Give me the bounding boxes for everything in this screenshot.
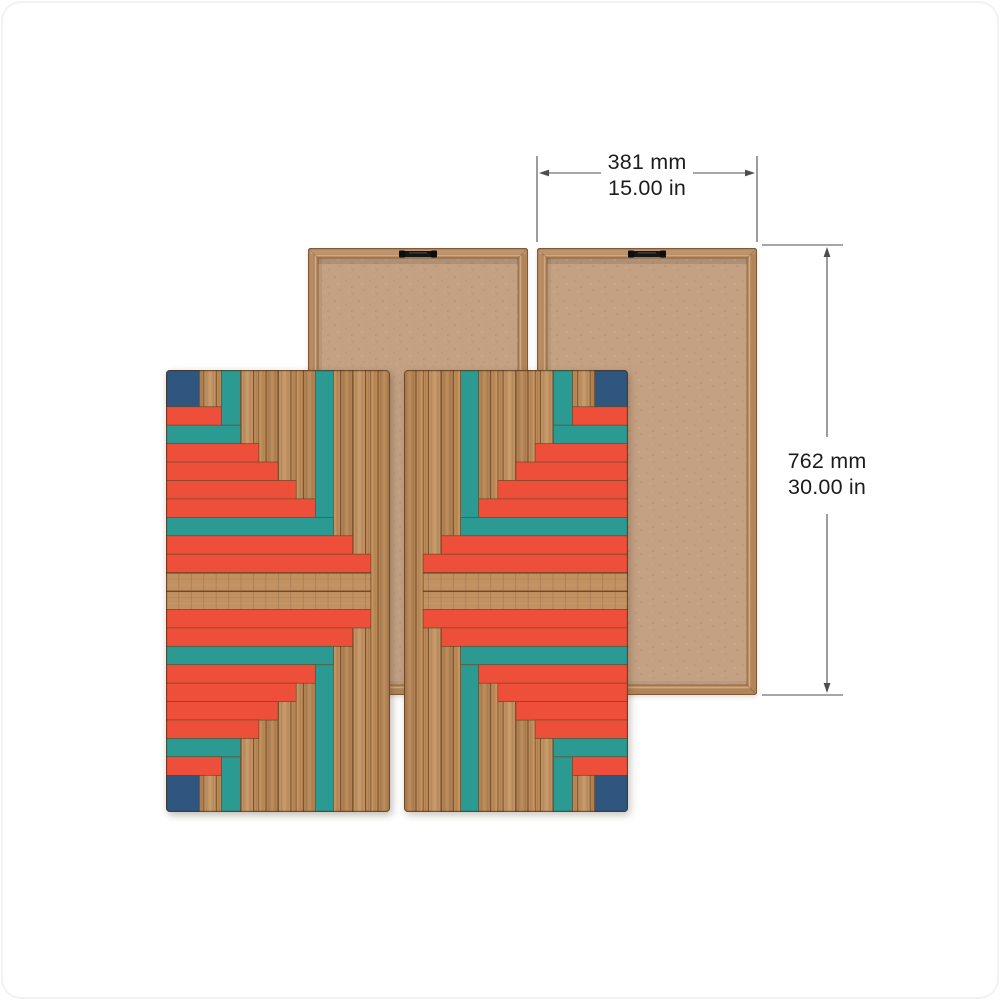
width-dimension-label: 381 mm 15.00 in [547,149,747,201]
sawtooth-hanger-icon [628,251,666,258]
height-dimension-label: 762 mm 30.00 in [727,448,927,500]
width-dimension-in: 15.00 in [547,175,747,201]
height-dimension-mm: 762 mm [727,448,927,474]
front-panel-right [404,370,628,812]
front-panel-left [166,370,390,812]
height-dimension-in: 30.00 in [727,474,927,500]
sawtooth-hanger-icon [399,251,437,258]
width-dimension-mm: 381 mm [547,149,747,175]
product-dimension-page: { "dimension_annotations": { "width": { … [0,0,1000,1000]
